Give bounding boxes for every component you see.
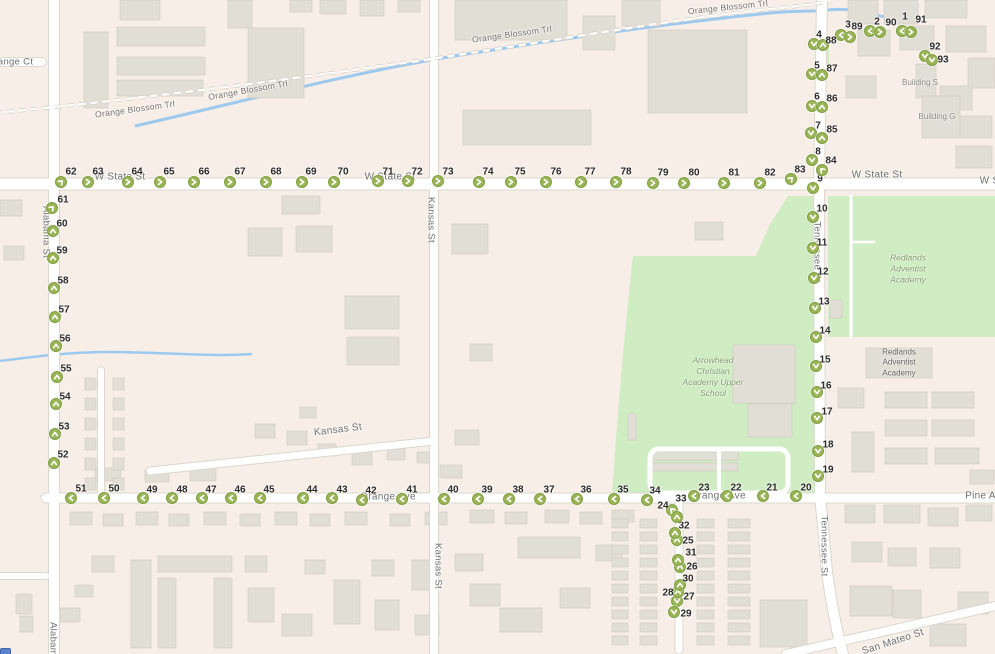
street-label: Orange Ct	[0, 57, 33, 68]
chevron-right-icon	[433, 176, 443, 186]
route-marker-number: 17	[821, 407, 832, 418]
chevron-left-icon	[642, 495, 652, 505]
route-marker-number: 65	[163, 167, 174, 178]
street-label: W State St	[980, 176, 995, 187]
route-marker-number: 89	[851, 22, 862, 33]
chevron-right-icon	[155, 177, 165, 187]
route-marker-number: 53	[58, 422, 69, 433]
map-base-layer	[0, 0, 995, 654]
area-label: Building S	[902, 78, 938, 88]
route-marker-number: 66	[198, 167, 209, 178]
chevron-left-icon	[535, 494, 545, 504]
route-marker-63[interactable]	[82, 176, 94, 188]
route-marker-number: 68	[270, 167, 281, 178]
route-marker-82[interactable]	[754, 177, 766, 189]
route-marker-81[interactable]	[718, 177, 730, 189]
chevron-right-icon	[83, 177, 93, 187]
street-label: Kansas St	[433, 543, 444, 589]
route-marker-number: 91	[915, 15, 926, 26]
chevron-left-icon	[473, 494, 483, 504]
chevron-up-icon	[672, 512, 682, 522]
route-marker-number: 7	[815, 121, 821, 132]
chevron-right-icon	[506, 177, 516, 187]
area-label: Redlands Adventist Academy	[882, 347, 916, 378]
route-marker-number: 20	[800, 483, 811, 494]
chevron-down-icon	[927, 55, 937, 65]
route-marker-number: 69	[305, 167, 316, 178]
chevron-right-icon	[648, 178, 658, 188]
route-marker-67[interactable]	[224, 176, 236, 188]
chevron-left-icon	[357, 495, 367, 505]
map-logo-partial[interactable]	[0, 648, 11, 654]
chevron-right-icon	[261, 177, 271, 187]
route-marker-number: 43	[336, 485, 347, 496]
chevron-right-icon	[189, 177, 199, 187]
route-marker-number: 42	[365, 486, 376, 497]
route-marker-33[interactable]	[671, 511, 683, 523]
route-marker-31[interactable]	[672, 554, 684, 566]
route-marker-number: 83	[794, 165, 805, 176]
chevron-right-icon	[373, 176, 383, 186]
route-marker-number: 31	[685, 548, 696, 559]
chevron-right-icon	[297, 177, 307, 187]
route-marker-number: 88	[825, 36, 836, 47]
chevron-down-icon	[669, 607, 679, 617]
route-marker-number: 12	[817, 267, 828, 278]
chevron-right-icon	[474, 177, 484, 187]
route-marker-number: 14	[819, 326, 830, 337]
chevron-left-icon	[66, 493, 76, 503]
chevron-right-icon	[906, 27, 916, 37]
route-marker-number: 24	[657, 501, 668, 512]
route-marker-80[interactable]	[678, 177, 690, 189]
chevron-right-icon	[329, 177, 339, 187]
route-marker-number: 21	[766, 483, 777, 494]
route-marker-number: 57	[58, 305, 69, 316]
chevron-right-icon	[225, 177, 235, 187]
route-marker-number: 77	[584, 167, 595, 178]
route-marker-number: 29	[680, 609, 691, 620]
route-marker-number: 41	[406, 485, 417, 496]
route-marker-90[interactable]	[874, 26, 886, 38]
route-marker-number: 81	[728, 168, 739, 179]
route-marker-number: 45	[263, 485, 274, 496]
chevron-right-icon	[719, 178, 729, 188]
route-marker-number: 93	[937, 55, 948, 66]
chevron-right-icon	[611, 177, 621, 187]
chevron-left-icon	[397, 494, 407, 504]
street-label: Alabama St	[48, 622, 59, 654]
route-marker-number: 33	[675, 494, 686, 505]
chevron-left-icon	[572, 494, 582, 504]
route-marker-number: 84	[825, 156, 836, 167]
route-marker-66[interactable]	[188, 176, 200, 188]
route-marker-number: 15	[819, 355, 830, 366]
route-marker-number: 58	[57, 276, 68, 287]
route-marker-number: 13	[818, 297, 829, 308]
route-marker-number: 11	[817, 238, 828, 249]
route-marker-number: 39	[481, 485, 492, 496]
route-marker-65[interactable]	[154, 176, 166, 188]
route-marker-number: 52	[57, 450, 68, 461]
route-marker-91[interactable]	[905, 26, 917, 38]
route-marker-number: 73	[442, 167, 453, 178]
route-marker-number: 80	[688, 168, 699, 179]
route-marker-number: 26	[686, 562, 697, 573]
chevron-up-icon	[673, 555, 683, 565]
route-marker-number: 71	[382, 167, 393, 178]
route-marker-68[interactable]	[260, 176, 272, 188]
street-label: W State St	[852, 170, 903, 181]
route-marker-number: 78	[620, 167, 631, 178]
chevron-left-icon	[504, 494, 514, 504]
chevron-right-icon	[576, 177, 586, 187]
route-marker-number: 37	[543, 485, 554, 496]
street-label: Pine Ave	[965, 491, 995, 502]
chevron-right-icon	[123, 177, 133, 187]
route-marker-74[interactable]	[473, 176, 485, 188]
route-marker-number: 18	[822, 440, 833, 451]
chevron-right-icon	[679, 178, 689, 188]
route-marker-number: 23	[698, 483, 709, 494]
route-marker-number: 67	[234, 167, 245, 178]
route-marker-number: 56	[59, 334, 70, 345]
route-marker-77[interactable]	[575, 176, 587, 188]
route-marker-number: 38	[512, 485, 523, 496]
route-marker-number: 75	[514, 167, 525, 178]
route-marker-number: 22	[730, 483, 741, 494]
route-marker-number: 61	[57, 195, 68, 206]
area-label: Arrowhead Christian Academy Upper School	[683, 355, 744, 399]
route-marker-number: 10	[816, 204, 827, 215]
route-marker-61[interactable]	[46, 202, 58, 214]
route-marker-93[interactable]	[926, 54, 938, 66]
route-marker-number: 62	[65, 167, 76, 178]
area-label: Building G	[919, 112, 956, 122]
route-marker-69[interactable]	[296, 176, 308, 188]
route-marker-number: 1	[902, 12, 908, 23]
route-marker-number: 87	[826, 64, 837, 75]
route-marker-64[interactable]	[122, 176, 134, 188]
route-marker-62[interactable]	[55, 176, 67, 188]
route-marker-29[interactable]	[668, 606, 680, 618]
route-marker-number: 64	[131, 167, 142, 178]
route-marker-number: 19	[822, 465, 833, 476]
route-marker-number: 46	[234, 485, 245, 496]
map-canvas[interactable]: Orange CtOrange Blossom TrlOrange Blosso…	[0, 0, 995, 654]
route-marker-79[interactable]	[647, 177, 659, 189]
route-marker-number: 34	[649, 486, 660, 497]
route-marker-70[interactable]	[328, 176, 340, 188]
route-marker-number: 47	[205, 485, 216, 496]
route-marker-76[interactable]	[540, 176, 552, 188]
route-marker-number: 30	[682, 574, 693, 585]
street-label: Kansas St	[426, 197, 437, 243]
area-label: Redlands Adventist Academy	[890, 252, 926, 285]
route-marker-number: 27	[683, 592, 694, 603]
chevron-right-icon	[403, 176, 413, 186]
route-marker-number: 70	[337, 167, 348, 178]
route-marker-number: 50	[108, 484, 119, 495]
route-marker-number: 92	[929, 42, 940, 53]
route-marker-number: 44	[306, 485, 317, 496]
route-marker-number: 63	[92, 167, 103, 178]
chevron-left-icon	[609, 494, 619, 504]
route-marker-78[interactable]	[610, 176, 622, 188]
route-marker-number: 85	[826, 125, 837, 136]
street-label: Tennessee St	[819, 515, 830, 576]
chevron-left-icon	[439, 494, 449, 504]
chevron-down-icon	[808, 183, 818, 193]
route-marker-number: 55	[60, 364, 71, 375]
route-marker-number: 3	[845, 20, 851, 31]
route-marker-number: 79	[657, 168, 668, 179]
route-marker-number: 28	[662, 588, 673, 599]
route-marker-number: 59	[56, 246, 67, 257]
route-marker-number: 76	[550, 167, 561, 178]
route-marker-number: 82	[764, 168, 775, 179]
route-marker-number: 51	[75, 484, 86, 495]
route-marker-number: 60	[56, 219, 67, 230]
route-marker-number: 86	[826, 94, 837, 105]
route-marker-number: 74	[482, 167, 493, 178]
route-marker-number: 90	[885, 18, 896, 29]
chevron-right-icon	[875, 27, 885, 37]
route-marker-number: 16	[820, 381, 831, 392]
route-marker-number: 54	[59, 392, 70, 403]
chevron-right-icon	[845, 32, 855, 42]
route-marker-number: 40	[447, 485, 458, 496]
route-marker-number: 25	[682, 536, 693, 547]
chevron-right-icon	[541, 177, 551, 187]
route-marker-75[interactable]	[505, 176, 517, 188]
chevron-right-icon	[755, 178, 765, 188]
route-marker-number: 48	[176, 485, 187, 496]
route-marker-89[interactable]	[844, 31, 856, 43]
route-marker-number: 49	[146, 485, 157, 496]
route-marker-number: 35	[617, 485, 628, 496]
chevron-left-icon	[99, 493, 109, 503]
route-marker-number: 72	[411, 167, 422, 178]
route-marker-number: 8	[815, 147, 821, 158]
route-marker-number: 36	[580, 485, 591, 496]
